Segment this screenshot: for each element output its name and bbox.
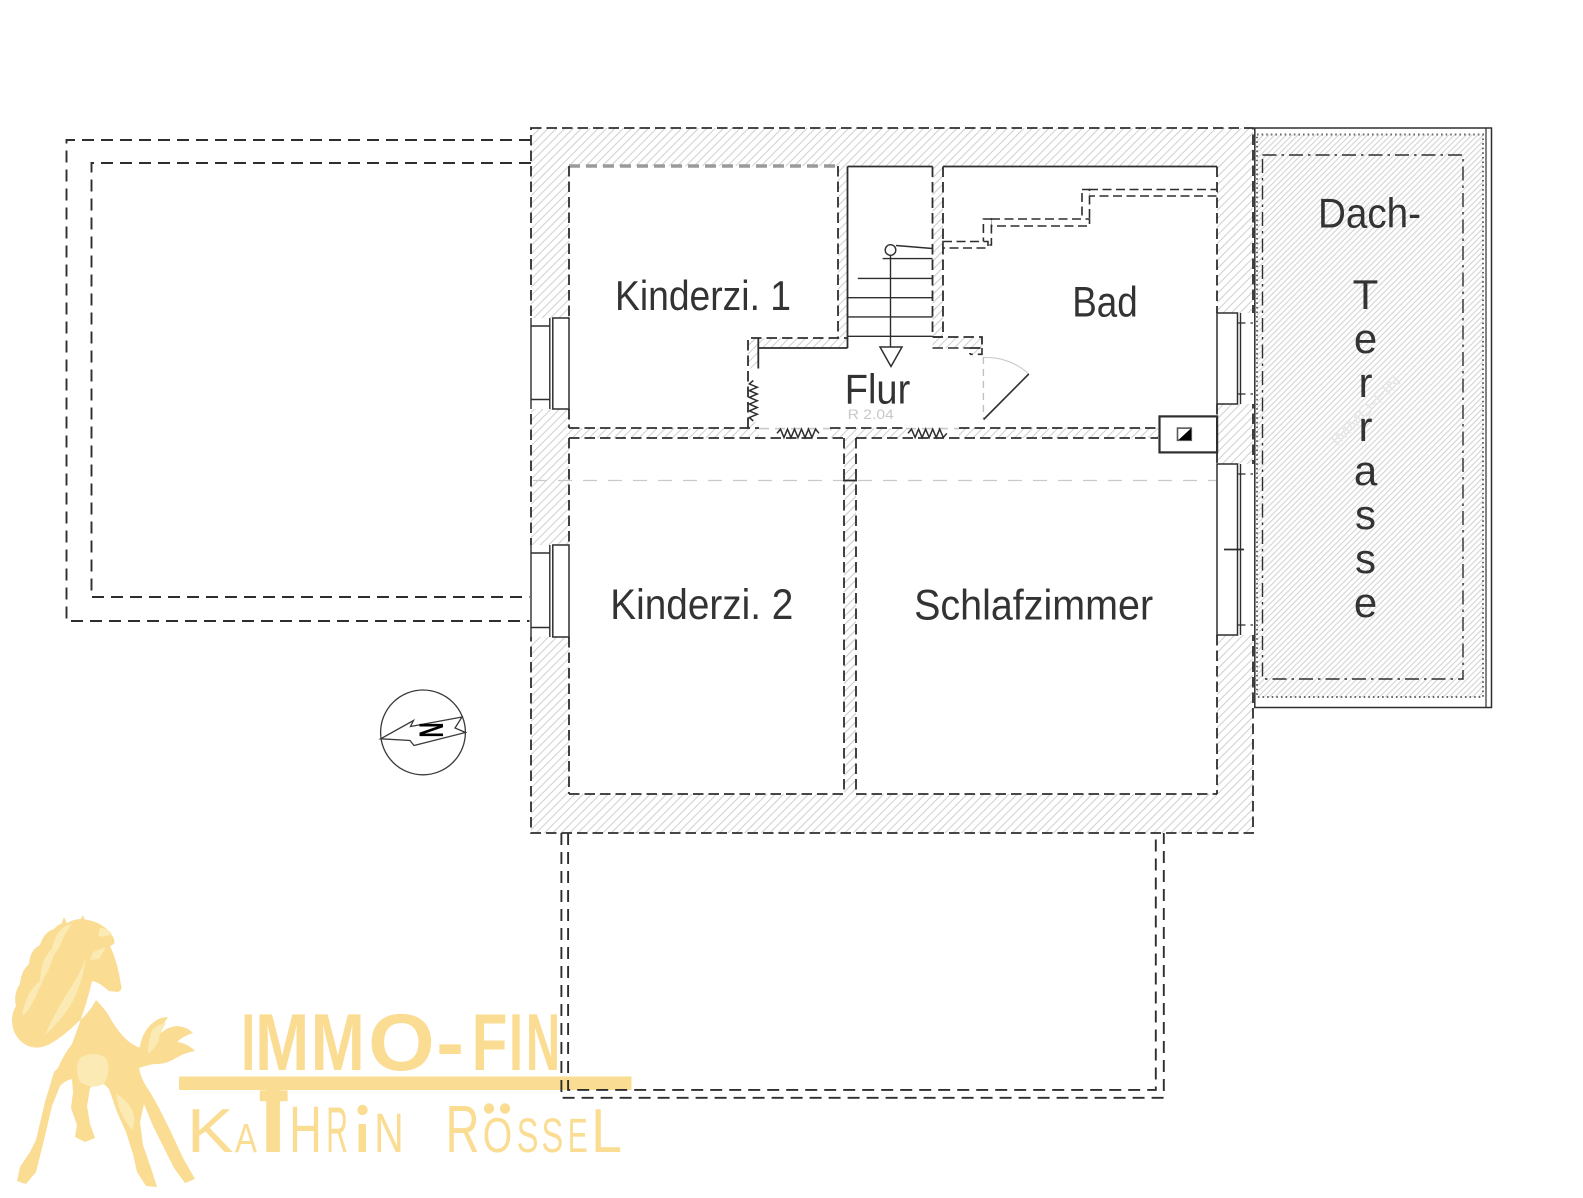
svg-text:T: T bbox=[1353, 271, 1379, 318]
svg-text:N: N bbox=[412, 723, 450, 738]
svg-text:M: M bbox=[311, 998, 365, 1088]
svg-text:H: H bbox=[289, 1092, 322, 1166]
svg-text:O: O bbox=[368, 998, 435, 1088]
svg-text:r: r bbox=[1359, 359, 1373, 406]
svg-text:a: a bbox=[1354, 447, 1378, 494]
svg-text:Kinderzi. 2: Kinderzi. 2 bbox=[610, 581, 793, 629]
svg-text:L: L bbox=[591, 1097, 622, 1166]
svg-text:e: e bbox=[1354, 579, 1377, 626]
svg-text:E: E bbox=[568, 1110, 588, 1163]
svg-text:F: F bbox=[472, 998, 508, 1088]
svg-text:r: r bbox=[1359, 403, 1373, 450]
svg-text:R: R bbox=[326, 1093, 348, 1166]
svg-text:e: e bbox=[1354, 315, 1377, 362]
svg-text:s: s bbox=[1355, 535, 1376, 582]
svg-text:Flur: Flur bbox=[845, 366, 911, 413]
svg-text:I: I bbox=[241, 998, 255, 1088]
svg-text:M: M bbox=[255, 998, 309, 1088]
svg-text:Bad: Bad bbox=[1072, 279, 1138, 327]
svg-text:N: N bbox=[526, 998, 560, 1088]
svg-text:A: A bbox=[235, 1115, 258, 1161]
svg-text:N: N bbox=[374, 1101, 404, 1164]
svg-text:I: I bbox=[509, 998, 523, 1088]
svg-text:Kinderzi. 1: Kinderzi. 1 bbox=[615, 272, 791, 319]
svg-text:S: S bbox=[542, 1110, 564, 1163]
svg-text:Schlafzimmer: Schlafzimmer bbox=[914, 582, 1153, 630]
svg-text:s: s bbox=[1355, 491, 1376, 538]
svg-text:R: R bbox=[446, 1092, 480, 1167]
svg-text:K: K bbox=[187, 1097, 234, 1166]
svg-text:R 2.04: R 2.04 bbox=[848, 407, 895, 422]
svg-text:Dach-: Dach- bbox=[1318, 190, 1421, 237]
svg-text:O: O bbox=[483, 1109, 512, 1163]
svg-text:-: - bbox=[436, 998, 464, 1088]
svg-text:S: S bbox=[517, 1110, 539, 1163]
